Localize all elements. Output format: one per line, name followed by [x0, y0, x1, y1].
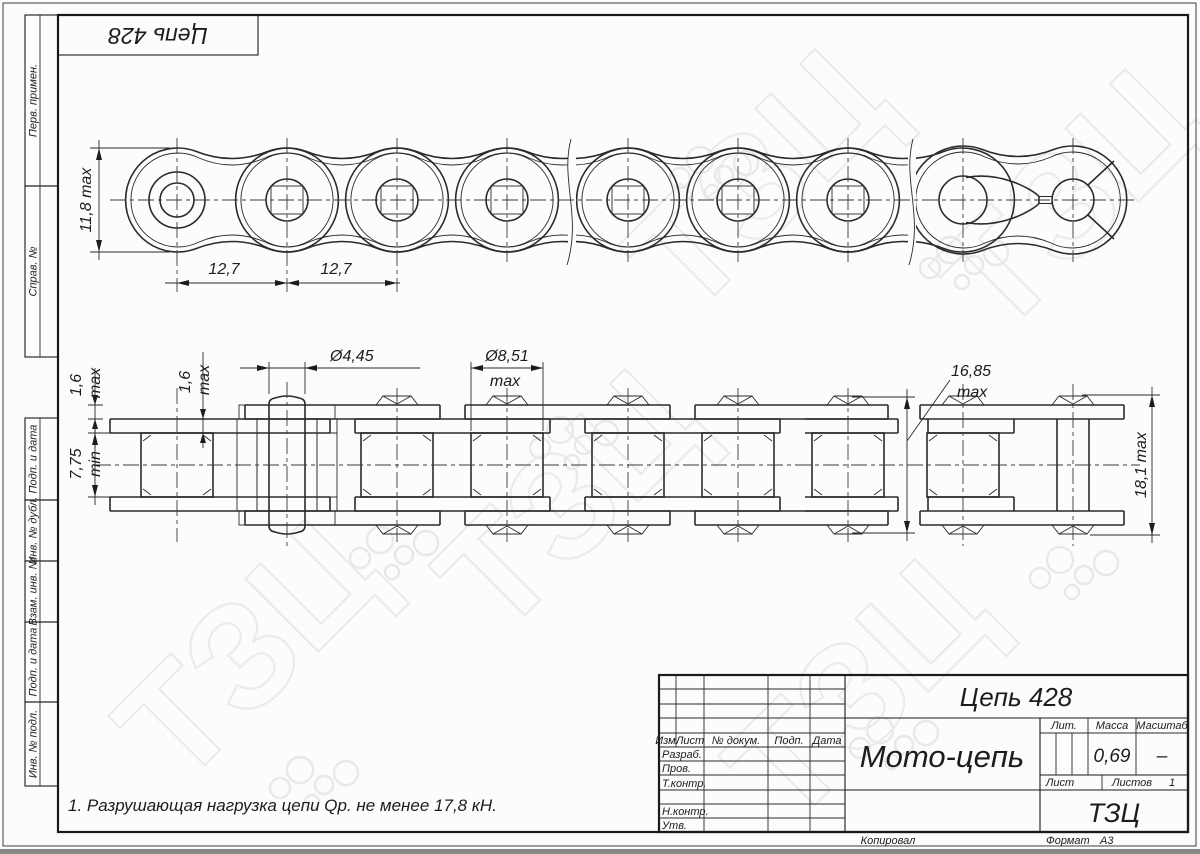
massa-value: 0,69 [1094, 746, 1131, 767]
margin-label: Подп. и дата [28, 425, 40, 494]
engineering-drawing: ТЗЦ ТЗЦ ТЗЦ ТЗЦ ТЗЦ [0, 0, 1200, 849]
row-tkontr: Т.контр. [662, 778, 706, 790]
watermark-logo: ТЗЦ [404, 335, 732, 663]
dim-outer-plate-sfx: max [87, 367, 104, 398]
col-data: Дата [810, 735, 841, 747]
col-list: Лист [675, 735, 704, 747]
margin-label: Справ. № [28, 246, 40, 296]
dim-pin-diameter: Ø4,45 [329, 348, 374, 365]
format-label: Формат [1046, 835, 1090, 847]
copied-label: Копировал [861, 835, 916, 847]
dim-inner-plate: 1,6 [177, 371, 194, 393]
col-doc: № докум. [712, 735, 760, 747]
margin-label: Инв. № дубл. [28, 497, 40, 565]
footer: Копировал Формат А3 [861, 835, 1115, 847]
watermark-logo: ТЗЦ [84, 485, 412, 813]
masshtab-value: – [1156, 746, 1168, 767]
dim-plate-width: 11,8 max [78, 167, 95, 233]
row-razrab: Разраб. [662, 749, 702, 761]
masshtab-label: Масштаб [1136, 720, 1188, 732]
organization: ТЗЦ [1088, 798, 1140, 828]
dim-inner-plate-sfx: max [196, 364, 213, 395]
doc-number: Цепь 428 [960, 682, 1073, 712]
row-nkontr: Н.контр. [662, 806, 709, 818]
massa-label: Масса [1096, 720, 1129, 732]
dim-inner-width-sfx: min [87, 451, 104, 477]
note-text: 1. Разрушающая нагрузка цепи Qр. не мене… [68, 796, 497, 815]
margin-label: Взам. инв. № [28, 557, 40, 625]
dim-pin-length-sfx: max [957, 384, 988, 401]
watermark-layer: ТЗЦ ТЗЦ ТЗЦ ТЗЦ ТЗЦ [84, 15, 1200, 849]
row-prov: Пров. [662, 763, 691, 775]
dim-lock-width: 18,1 max [1133, 431, 1150, 498]
lit-label: Лит. [1050, 720, 1077, 732]
listov-value: 1 [1169, 777, 1175, 789]
product-name: Мото-цепь [860, 739, 1024, 774]
row-utv: Утв. [661, 820, 687, 832]
dim-pitch-1: 12,7 [208, 261, 240, 278]
drawing-sheet: ТЗЦ ТЗЦ ТЗЦ ТЗЦ ТЗЦ [0, 0, 1200, 849]
watermark-logo: ТЗЦ [594, 15, 922, 343]
dim-pitch-2: 12,7 [320, 261, 352, 278]
margin-label: Инв. № подл. [28, 710, 40, 778]
margin-blocks: Перв. примен. Справ. № Подп. и дата Инв.… [25, 15, 58, 786]
break-line [567, 139, 572, 265]
dim-roller-diameter: Ø8,51 [484, 348, 529, 365]
margin-label: Подп. и дата [28, 628, 40, 697]
corner-stamp-text: Цепь 428 [108, 23, 208, 49]
dim-roller-diameter-sfx: max [490, 373, 521, 390]
format-value: А3 [1099, 835, 1114, 847]
col-podp: Подп. [774, 735, 803, 747]
list-label: Лист [1045, 777, 1074, 789]
dim-outer-plate: 1,6 [68, 374, 85, 396]
dim-pin-length: 16,85 [951, 363, 991, 380]
margin-label: Перв. примен. [28, 64, 40, 137]
dim-inner-width: 7,75 [68, 448, 85, 479]
listov-label: Листов [1111, 777, 1152, 789]
